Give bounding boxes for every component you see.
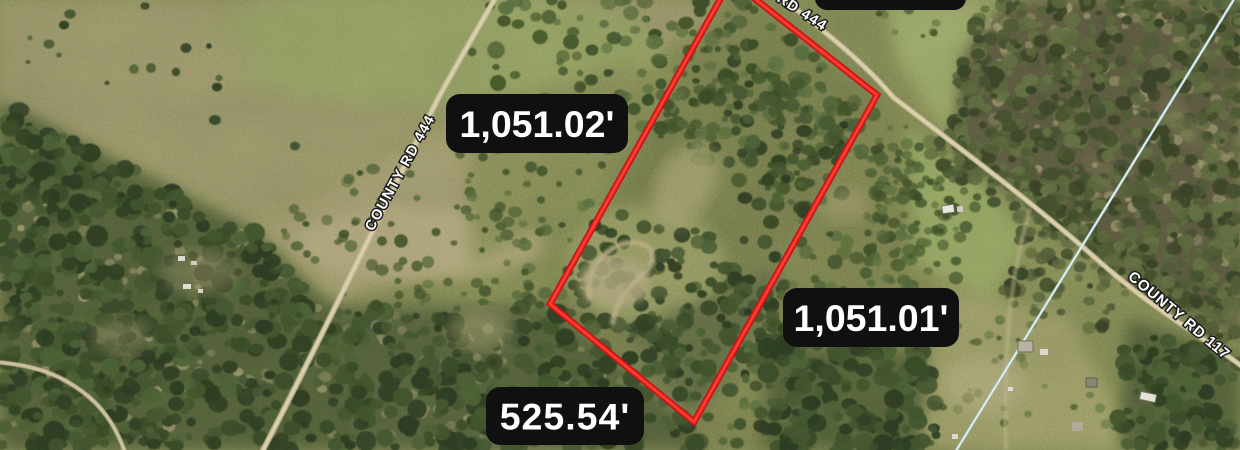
svg-text:1,051.02': 1,051.02' (460, 103, 615, 145)
svg-text:1,051.01': 1,051.01' (794, 297, 949, 339)
svg-text:525.54': 525.54' (500, 395, 631, 437)
